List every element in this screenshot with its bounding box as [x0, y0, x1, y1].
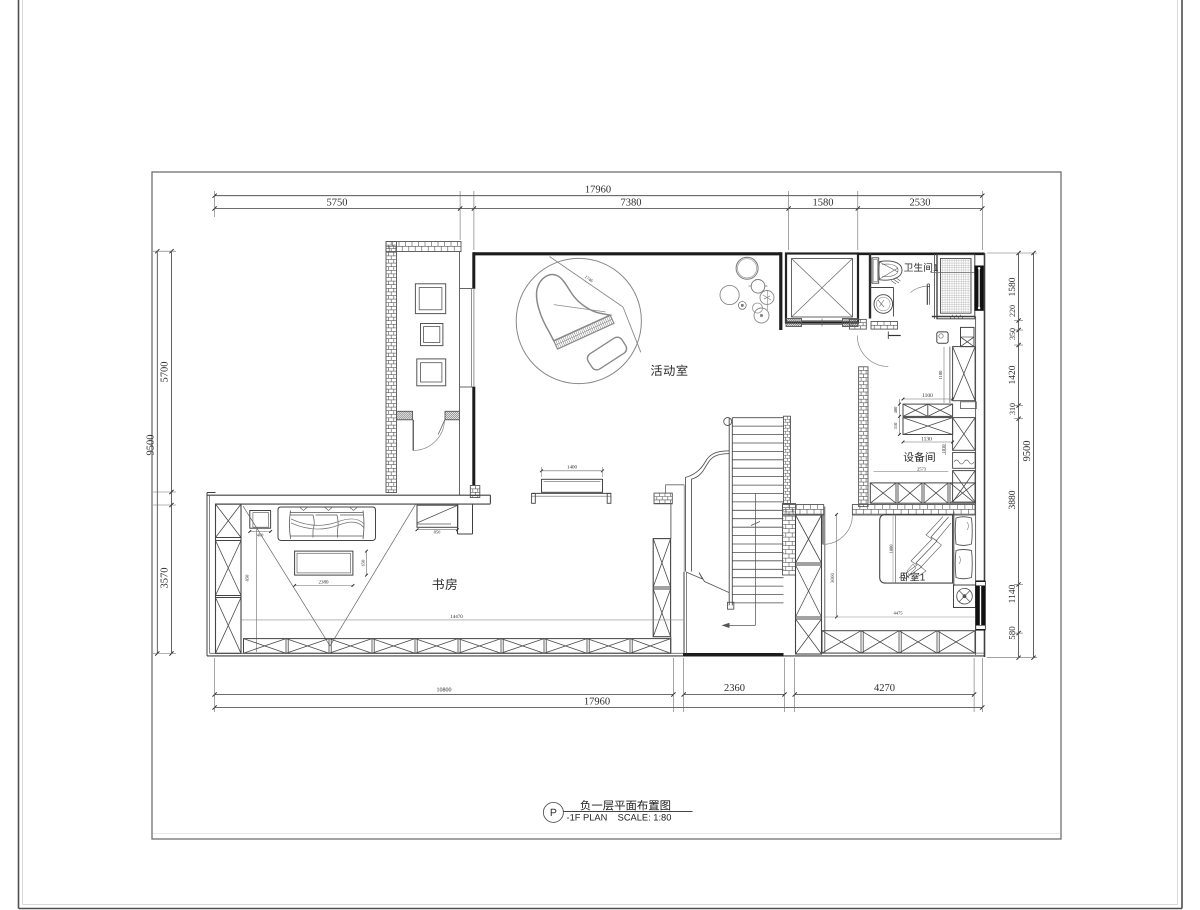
- svg-text:2360: 2360: [724, 683, 745, 694]
- svg-text:1580: 1580: [813, 198, 834, 209]
- svg-text:580: 580: [1007, 626, 1017, 640]
- svg-text:9500: 9500: [146, 435, 157, 456]
- svg-text:P: P: [550, 807, 557, 819]
- svg-text:书房: 书房: [432, 577, 459, 592]
- svg-text:310: 310: [893, 422, 898, 430]
- svg-text:1010: 1010: [941, 444, 946, 454]
- svg-text:4475: 4475: [894, 611, 904, 616]
- svg-text:1100: 1100: [938, 370, 943, 380]
- svg-text:3000: 3000: [830, 573, 836, 584]
- svg-text:310: 310: [1008, 403, 1017, 415]
- svg-text:2380: 2380: [319, 580, 330, 586]
- svg-text:4270: 4270: [874, 683, 895, 694]
- svg-text:设备间: 设备间: [903, 451, 935, 464]
- svg-text:3570: 3570: [160, 568, 171, 589]
- svg-text:2573: 2573: [917, 466, 927, 471]
- svg-text:17960: 17960: [584, 697, 610, 708]
- svg-text:-1F PLAN SCALE: 1:80: -1F PLAN SCALE: 1:80: [567, 813, 672, 823]
- svg-text:650: 650: [361, 559, 366, 567]
- svg-text:7380: 7380: [621, 198, 642, 209]
- svg-text:1420: 1420: [1008, 365, 1018, 384]
- svg-text:5700: 5700: [160, 362, 171, 383]
- svg-text:850: 850: [245, 574, 250, 582]
- svg-text:活动室: 活动室: [650, 364, 688, 378]
- svg-text:1400: 1400: [567, 464, 578, 470]
- svg-text:400: 400: [257, 533, 265, 538]
- svg-text:1580: 1580: [1008, 277, 1018, 296]
- svg-text:5750: 5750: [327, 198, 348, 209]
- svg-text:14470: 14470: [450, 614, 463, 620]
- svg-text:220: 220: [1008, 305, 1017, 317]
- svg-text:3880: 3880: [1008, 490, 1018, 509]
- svg-text:1140: 1140: [1008, 584, 1018, 603]
- svg-text:1800: 1800: [889, 544, 894, 554]
- svg-text:10800: 10800: [437, 688, 452, 694]
- svg-text:400: 400: [893, 406, 898, 414]
- svg-text:1130: 1130: [921, 437, 932, 443]
- svg-text:负一层平面布置图: 负一层平面布置图: [580, 800, 671, 813]
- svg-text:2530: 2530: [910, 198, 931, 209]
- svg-text:17960: 17960: [585, 185, 611, 196]
- svg-text:850: 850: [434, 530, 442, 535]
- svg-text:1100: 1100: [922, 393, 933, 399]
- svg-text:9500: 9500: [1022, 441, 1033, 462]
